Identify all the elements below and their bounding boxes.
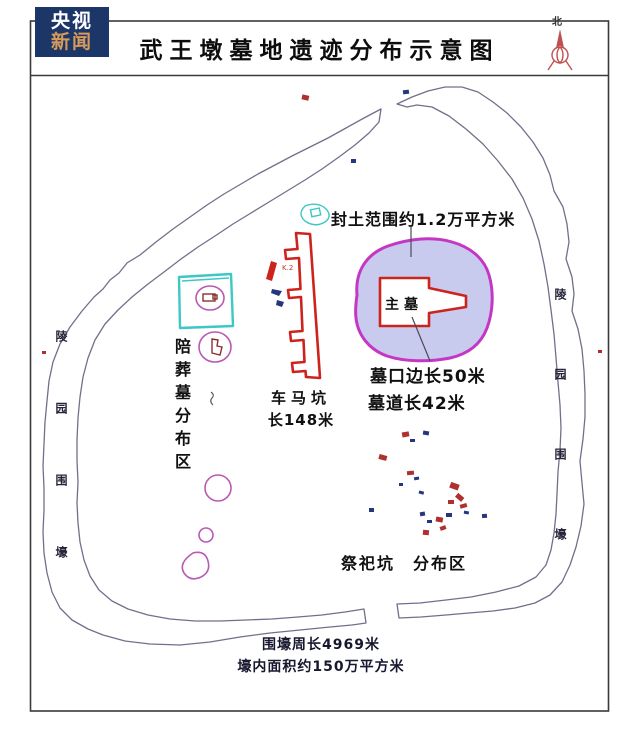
pit-code-label: K.2 <box>282 264 293 272</box>
chariot-blue-mark-1 <box>271 289 282 296</box>
misc-marks <box>42 90 602 354</box>
chariot-pit-shapes <box>266 233 320 378</box>
tomb-circle-1 <box>196 286 224 310</box>
tomb-passage-length-label: 墓道长42米 <box>368 389 466 414</box>
small-cyan-pond <box>301 204 329 225</box>
cyan-enclosure-inner-line <box>182 278 229 281</box>
small-pit-k2 <box>266 261 277 281</box>
chariot-pit-length-label: 长148米 <box>258 409 344 430</box>
page-title: 武王墩墓地遗迹分布示意图 <box>30 31 609 65</box>
news-graphic: 央视 新闻 武王墩墓地遗迹分布示意图 北 封土范围约1.2万平方米 主墓 墓口边… <box>0 0 640 753</box>
sacrificial-pit-marks <box>369 431 487 536</box>
tomb-circle-4 <box>199 528 213 542</box>
moat-perimeter-label: 围壕周长4969米 <box>226 634 416 654</box>
logo-line2: 新闻 <box>51 32 93 53</box>
sacrificial-pits-label: 祭祀坑 分布区 <box>341 550 467 574</box>
tomb-circle-5 <box>182 552 208 578</box>
north-label: 北 <box>552 13 562 28</box>
tomb-circle-3 <box>205 475 231 501</box>
cctv-news-logo: 央视 新闻 <box>35 7 109 57</box>
moat-area-label: 壕内面积约150万平方米 <box>216 656 426 676</box>
small-cyan-pond-inner <box>310 208 320 217</box>
tomb-circle-2-feature <box>212 339 222 355</box>
tomb-circle-2 <box>199 332 231 362</box>
moat-label-right: 陵园围壕 <box>552 288 569 608</box>
moat-label-left: 陵园围壕 <box>53 330 70 618</box>
main-tomb-label: 主墓 <box>381 294 427 314</box>
moat-west-band <box>43 109 381 645</box>
chariot-pit-shape <box>285 233 320 378</box>
mound-area-label: 封土范围约1.2万平方米 <box>331 206 515 230</box>
logo-line1: 央视 <box>51 11 93 32</box>
chariot-blue-mark-2 <box>276 300 284 307</box>
tomb-side-length-label: 墓口边长50米 <box>370 362 486 387</box>
chariot-pit-name-label: 车马坑 <box>258 387 344 408</box>
small-feature-mark <box>211 392 214 405</box>
accompany-tombs-label: 陪葬墓分布区 <box>169 338 193 476</box>
